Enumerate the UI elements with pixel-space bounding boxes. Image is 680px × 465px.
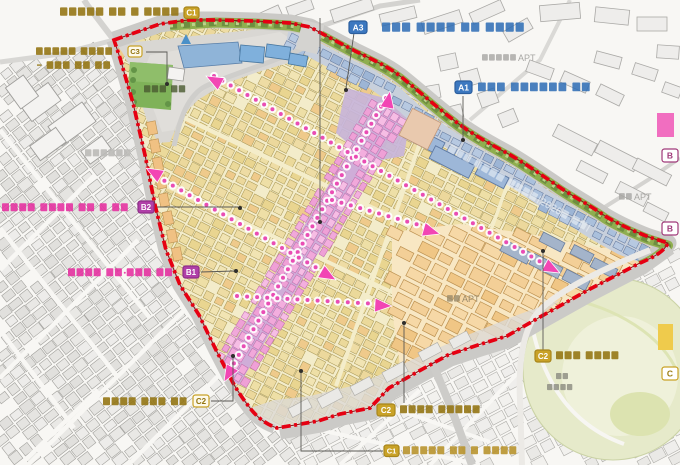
svg-text:C2: C2	[196, 397, 207, 406]
svg-text:C3: C3	[130, 47, 140, 56]
svg-text:C2: C2	[538, 352, 549, 361]
svg-text:APT: APT	[462, 294, 480, 304]
svg-text:B1: B1	[186, 268, 197, 277]
svg-text:A1: A1	[458, 82, 469, 92]
svg-text:C1: C1	[186, 9, 197, 18]
svg-text:C: C	[667, 369, 673, 379]
svg-text:B: B	[667, 151, 673, 161]
svg-text:B: B	[667, 224, 673, 234]
svg-text:B2: B2	[141, 203, 152, 212]
svg-text:A3: A3	[353, 22, 364, 32]
svg-text:C1: C1	[387, 446, 397, 455]
svg-text:APT: APT	[518, 53, 536, 63]
svg-text:APT: APT	[634, 192, 652, 202]
svg-text:C2: C2	[381, 406, 392, 415]
